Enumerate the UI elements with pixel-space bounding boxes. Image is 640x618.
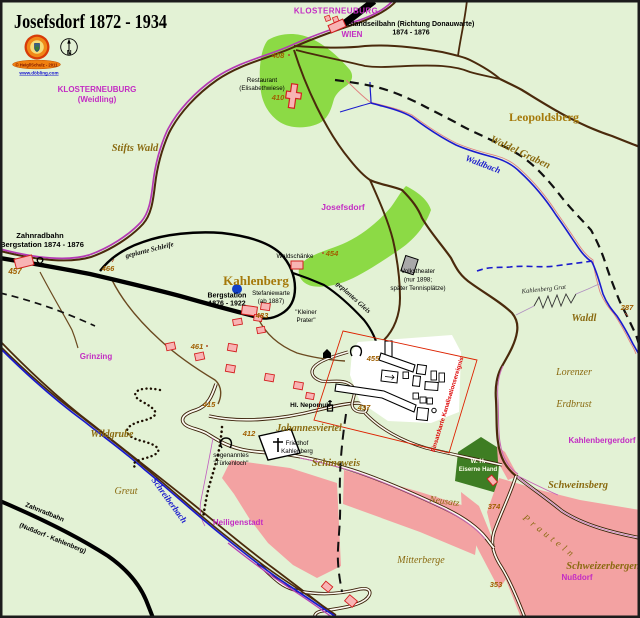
- svg-text:Kahlenberg: Kahlenberg: [281, 448, 313, 455]
- svg-text:412: 412: [242, 429, 256, 438]
- svg-text:Schweizerbergen: Schweizerbergen: [566, 561, 640, 572]
- svg-text:Leopoldsberg: Leopoldsberg: [509, 110, 579, 124]
- svg-text:Kahlenberg: Kahlenberg: [223, 273, 289, 288]
- svg-text:Stifts Wald: Stifts Wald: [112, 143, 159, 154]
- svg-text:287: 287: [620, 303, 634, 312]
- svg-text:Schweinsberg: Schweinsberg: [548, 480, 608, 491]
- svg-text:(ab 1887): (ab 1887): [258, 298, 285, 305]
- svg-text:Hl. Nepomuk: Hl. Nepomuk: [290, 402, 330, 409]
- svg-text:454: 454: [325, 249, 339, 258]
- svg-text:KLOSTERNEUBURG: KLOSTERNEUBURG: [294, 7, 378, 16]
- svg-text:466: 466: [101, 264, 115, 273]
- svg-text:Zahnradbahn: Zahnradbahn: [16, 231, 64, 240]
- svg-text:Bergstation 1874 - 1876: Bergstation 1874 - 1876: [0, 240, 84, 249]
- svg-text:später Tennisplätze): später Tennisplätze): [390, 285, 445, 292]
- svg-text:Grinzing: Grinzing: [80, 352, 113, 361]
- svg-text:374: 374: [488, 502, 501, 511]
- svg-text:Kahlenbergerdorf: Kahlenbergerdorf: [568, 436, 635, 445]
- svg-text:Prater": Prater": [296, 317, 315, 324]
- svg-text:Erdbrust: Erdbrust: [555, 399, 591, 410]
- svg-text:Bergstation: Bergstation: [208, 293, 247, 300]
- svg-text:Standseilbahn (Richtung Donauw: Standseilbahn (Richtung Donauwarte): [348, 21, 475, 28]
- svg-text:Johannesviertel: Johannesviertel: [275, 423, 342, 434]
- svg-text:353: 353: [490, 580, 503, 589]
- svg-text:Waldschänke: Waldschänke: [277, 253, 314, 260]
- svg-text:sogenanntes: sogenanntes: [213, 452, 248, 459]
- svg-text:© Heigl/Schulz - 2011: © Heigl/Schulz - 2011: [16, 62, 59, 67]
- svg-text:WIEN: WIEN: [342, 30, 363, 39]
- svg-text:457: 457: [7, 267, 22, 276]
- svg-text:Wildgrube: Wildgrube: [91, 429, 135, 440]
- svg-text:W. H.: W. H.: [471, 459, 486, 465]
- svg-text:www.döbling.com: www.döbling.com: [18, 71, 58, 76]
- svg-text:Greut: Greut: [115, 486, 138, 497]
- svg-text:Ω: Ω: [36, 256, 44, 267]
- svg-text:Lorenzer: Lorenzer: [555, 367, 592, 378]
- svg-text:Volkstheater: Volkstheater: [401, 268, 435, 275]
- svg-text:"Türkenloch": "Türkenloch": [213, 460, 248, 467]
- svg-text:408: 408: [271, 51, 285, 60]
- svg-text:(nur 1898;: (nur 1898;: [404, 277, 432, 284]
- svg-text:Heiligenstadt: Heiligenstadt: [213, 518, 264, 527]
- svg-text:KLOSTERNEUBURG: KLOSTERNEUBURG: [58, 85, 137, 94]
- svg-text:Stefaniewarte: Stefaniewarte: [252, 290, 290, 297]
- svg-text:410: 410: [271, 93, 285, 102]
- svg-text:461: 461: [190, 342, 204, 351]
- svg-text:415: 415: [202, 400, 216, 409]
- svg-text:1876 - 1922: 1876 - 1922: [208, 301, 245, 308]
- svg-text:437: 437: [357, 403, 371, 412]
- svg-text:Nußdorf: Nußdorf: [561, 573, 592, 582]
- svg-text:N: N: [67, 49, 72, 56]
- svg-text:Josefsdorf 1872 - 1934: Josefsdorf 1872 - 1934: [14, 11, 167, 33]
- svg-text:Friedhof: Friedhof: [286, 440, 309, 447]
- svg-text:(Elisabethwiese): (Elisabethwiese): [239, 85, 284, 92]
- svg-text:Eiserne Hand: Eiserne Hand: [459, 467, 498, 473]
- svg-text:Schineweis: Schineweis: [312, 458, 360, 469]
- svg-text:Restaurant: Restaurant: [247, 77, 278, 84]
- svg-text:Josefsdorf: Josefsdorf: [321, 202, 365, 212]
- svg-text:Mitterberge: Mitterberge: [396, 555, 445, 566]
- svg-text:(Weidling): (Weidling): [78, 95, 117, 104]
- svg-text:1874 - 1876: 1874 - 1876: [392, 30, 429, 37]
- svg-text:Waldl: Waldl: [572, 313, 597, 324]
- svg-text:483: 483: [255, 311, 269, 320]
- svg-text:"Kleiner: "Kleiner: [295, 309, 316, 316]
- svg-text:455: 455: [366, 354, 380, 363]
